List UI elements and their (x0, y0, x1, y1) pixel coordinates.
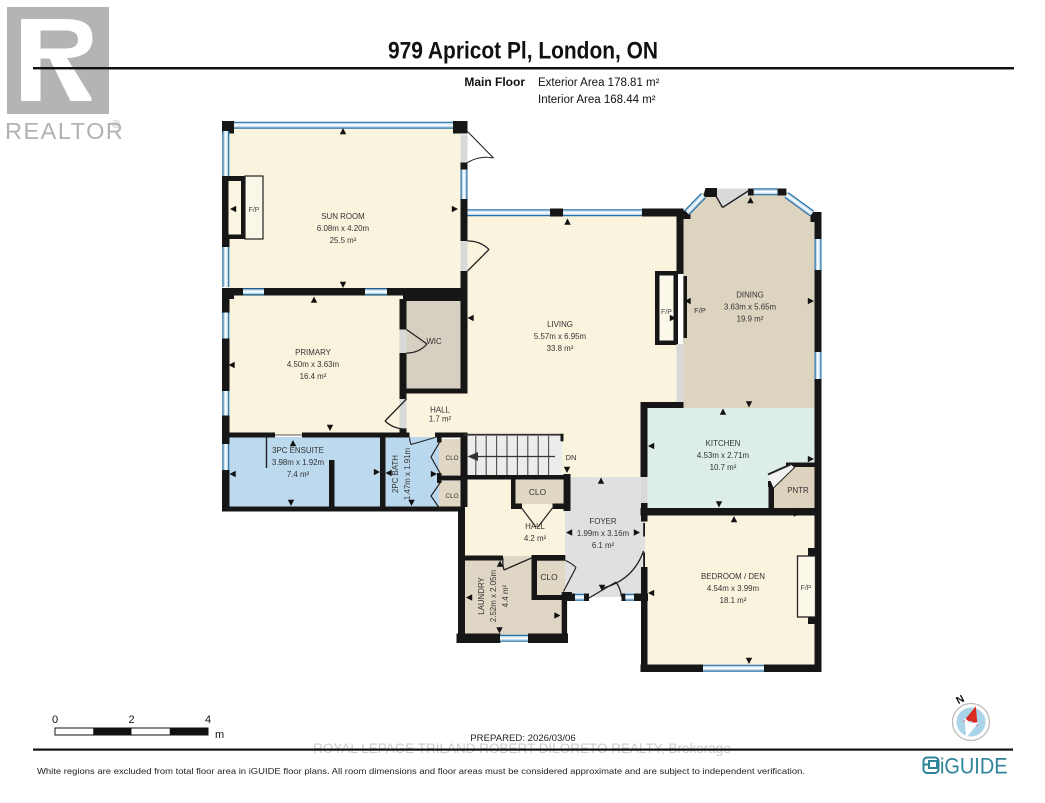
svg-text:2: 2 (128, 714, 134, 726)
svg-text:CLO: CLO (446, 455, 459, 462)
svg-text:4: 4 (205, 714, 211, 726)
svg-text:DINING: DINING (736, 291, 764, 300)
svg-text:3.98m x 1.92m: 3.98m x 1.92m (272, 458, 325, 467)
svg-text:4.50m x 3.63m: 4.50m x 3.63m (287, 360, 340, 369)
svg-text:iGUIDE: iGUIDE (940, 754, 1008, 779)
svg-text:WIC: WIC (426, 337, 442, 346)
svg-text:CLO: CLO (540, 572, 558, 582)
svg-text:18.1 m²: 18.1 m² (720, 596, 747, 605)
svg-text:m: m (215, 729, 224, 741)
svg-text:®: ® (112, 119, 120, 131)
svg-text:SUN ROOM: SUN ROOM (321, 212, 364, 221)
svg-text:6.08m x 4.20m: 6.08m x 4.20m (317, 224, 370, 233)
svg-text:Main Floor: Main Floor (464, 75, 525, 89)
svg-text:19.9 m²: 19.9 m² (737, 315, 764, 324)
svg-text:4.53m x 2.71m: 4.53m x 2.71m (697, 451, 750, 460)
svg-text:PNTR: PNTR (787, 486, 809, 495)
svg-text:KITCHEN: KITCHEN (706, 439, 741, 448)
svg-text:10.7 m²: 10.7 m² (710, 463, 737, 472)
svg-text:F/P: F/P (661, 309, 672, 316)
svg-text:Exterior Area 178.81 m²: Exterior Area 178.81 m² (538, 77, 660, 89)
svg-text:25.5 m²: 25.5 m² (330, 236, 357, 245)
svg-text:1.99m x 3.16m: 1.99m x 3.16m (577, 529, 630, 538)
svg-text:White regions are excluded fro: White regions are excluded from total fl… (37, 766, 805, 776)
svg-text:CLO: CLO (446, 493, 459, 500)
svg-text:PRIMARY: PRIMARY (295, 348, 332, 357)
svg-text:33.8 m²: 33.8 m² (547, 344, 574, 353)
svg-text:REALTOR: REALTOR (5, 118, 124, 144)
svg-text:7.4 m²: 7.4 m² (287, 470, 310, 479)
svg-text:4.54m x 3.99m: 4.54m x 3.99m (707, 584, 760, 593)
svg-text:F/P: F/P (801, 585, 812, 592)
svg-text:6.1 m²: 6.1 m² (592, 541, 615, 550)
svg-text:0: 0 (52, 714, 58, 726)
svg-text:DN: DN (566, 453, 577, 462)
svg-text:3.63m x 5.65m: 3.63m x 5.65m (724, 303, 777, 312)
svg-text:F/P: F/P (694, 306, 706, 315)
svg-text:FOYER: FOYER (589, 517, 616, 526)
svg-text:1.7 m²: 1.7 m² (429, 415, 452, 424)
svg-text:BEDROOM / DEN: BEDROOM / DEN (701, 572, 765, 581)
svg-text:16.4 m²: 16.4 m² (300, 372, 327, 381)
svg-text:979 Apricot Pl, London, ON: 979 Apricot Pl, London, ON (388, 38, 658, 65)
svg-text:4.2 m²: 4.2 m² (524, 534, 547, 543)
svg-text:Interior Area 168.44 m²: Interior Area 168.44 m² (538, 94, 656, 106)
svg-text:F/P: F/P (249, 207, 260, 214)
svg-text:5.57m x 6.95m: 5.57m x 6.95m (534, 332, 587, 341)
svg-text:HALL: HALL (430, 406, 450, 415)
svg-text:CLO: CLO (529, 487, 547, 497)
svg-text:LIVING: LIVING (547, 320, 573, 329)
svg-text:3PC ENSUITE: 3PC ENSUITE (272, 446, 324, 455)
svg-text:HALL: HALL (525, 522, 545, 531)
